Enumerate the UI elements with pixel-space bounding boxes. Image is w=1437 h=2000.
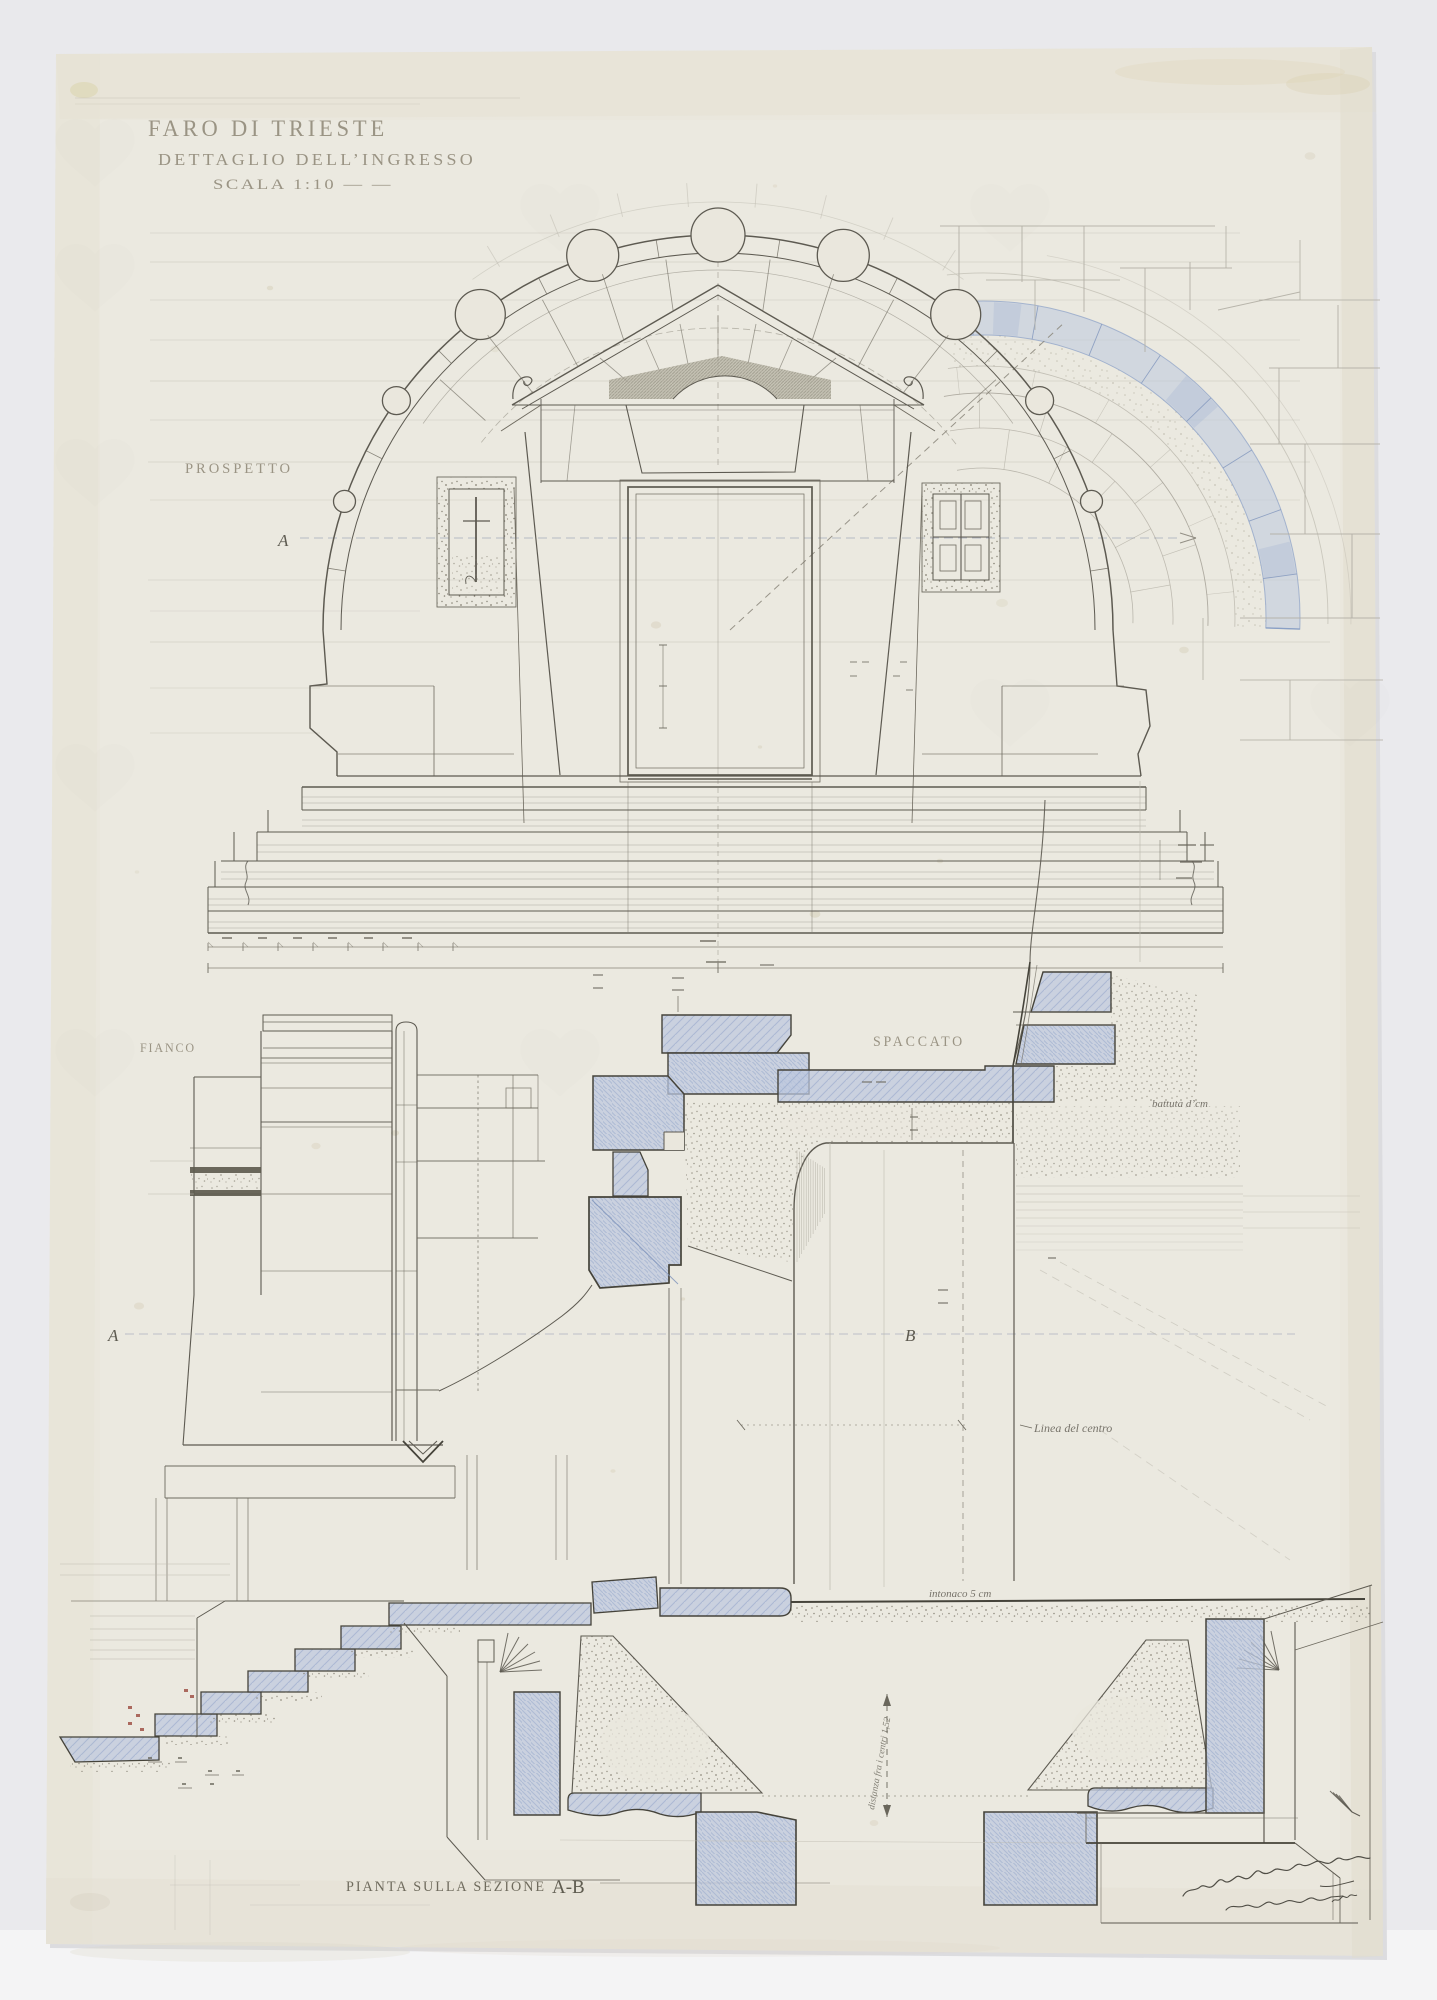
svg-text:PROSPETTO: PROSPETTO <box>185 461 293 477</box>
svg-text:battuta d’cm: battuta d’cm <box>1152 1098 1208 1110</box>
svg-text:PIANTA SULLA SEZIONE: PIANTA SULLA SEZIONE <box>346 1879 546 1895</box>
svg-text:FIANCO: FIANCO <box>140 1040 196 1055</box>
svg-text:A: A <box>277 531 289 550</box>
svg-text:B: B <box>905 1326 916 1345</box>
svg-text:A: A <box>107 1326 119 1345</box>
svg-text:DETTAGLIO DELL’INGRESSO: DETTAGLIO DELL’INGRESSO <box>158 150 476 169</box>
svg-text:intonaco 5 cm: intonaco 5 cm <box>929 1588 991 1600</box>
svg-text:SPACCATO: SPACCATO <box>873 1034 965 1050</box>
svg-text:Linea del centro: Linea del centro <box>1033 1421 1112 1435</box>
svg-text:FARO DI TRIESTE: FARO DI TRIESTE <box>148 116 388 142</box>
svg-text:SCALA 1:10 — —: SCALA 1:10 — — <box>213 177 393 193</box>
